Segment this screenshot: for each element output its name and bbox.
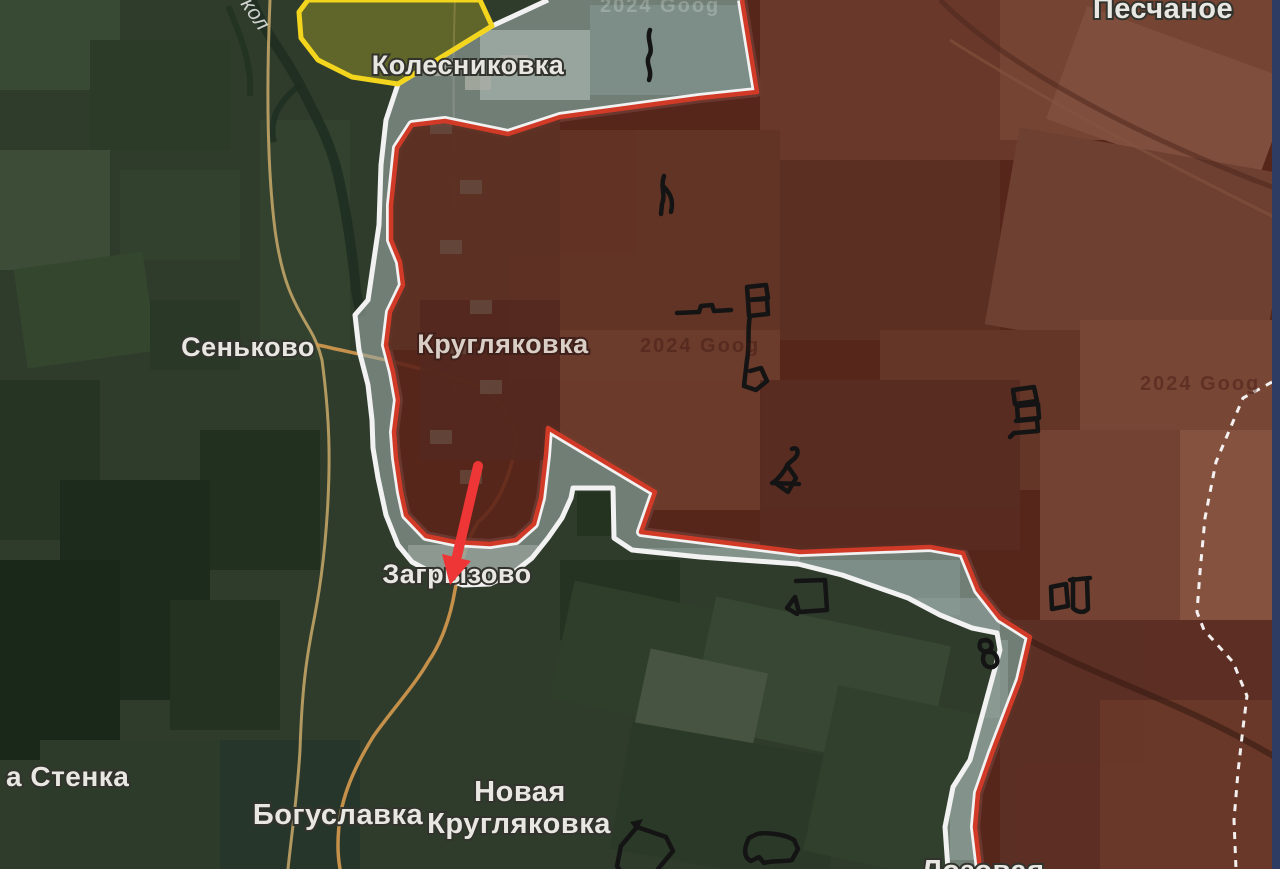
label-novaya-kruglyakovka-line2: Кругляковка bbox=[427, 808, 611, 840]
label-peschanoe: Песчаное bbox=[1093, 0, 1233, 25]
label-senkovo: Сеньково bbox=[181, 332, 315, 362]
label-kolesnikovka: Колесниковка bbox=[372, 50, 565, 80]
svg-text:2024 Goog: 2024 Goog bbox=[600, 0, 720, 17]
position-marker bbox=[648, 30, 651, 80]
svg-text:2024 Goog: 2024 Goog bbox=[1140, 373, 1260, 395]
label-stenka-partial: а Стенка bbox=[6, 761, 129, 792]
label-boguslavka: Богуславка bbox=[253, 799, 424, 831]
label-kruglyakovka: Кругляковка bbox=[417, 329, 589, 359]
map-viewport[interactable]: 2024 Goog 2024 Goog 2024 Goog Колесников… bbox=[0, 0, 1280, 869]
label-lozovaya: Лозовая bbox=[921, 855, 1044, 869]
viewport-edge-strip bbox=[1272, 0, 1280, 869]
label-novaya-kruglyakovka-line1: Новая bbox=[474, 776, 566, 808]
svg-text:2024 Goog: 2024 Goog bbox=[640, 335, 760, 357]
